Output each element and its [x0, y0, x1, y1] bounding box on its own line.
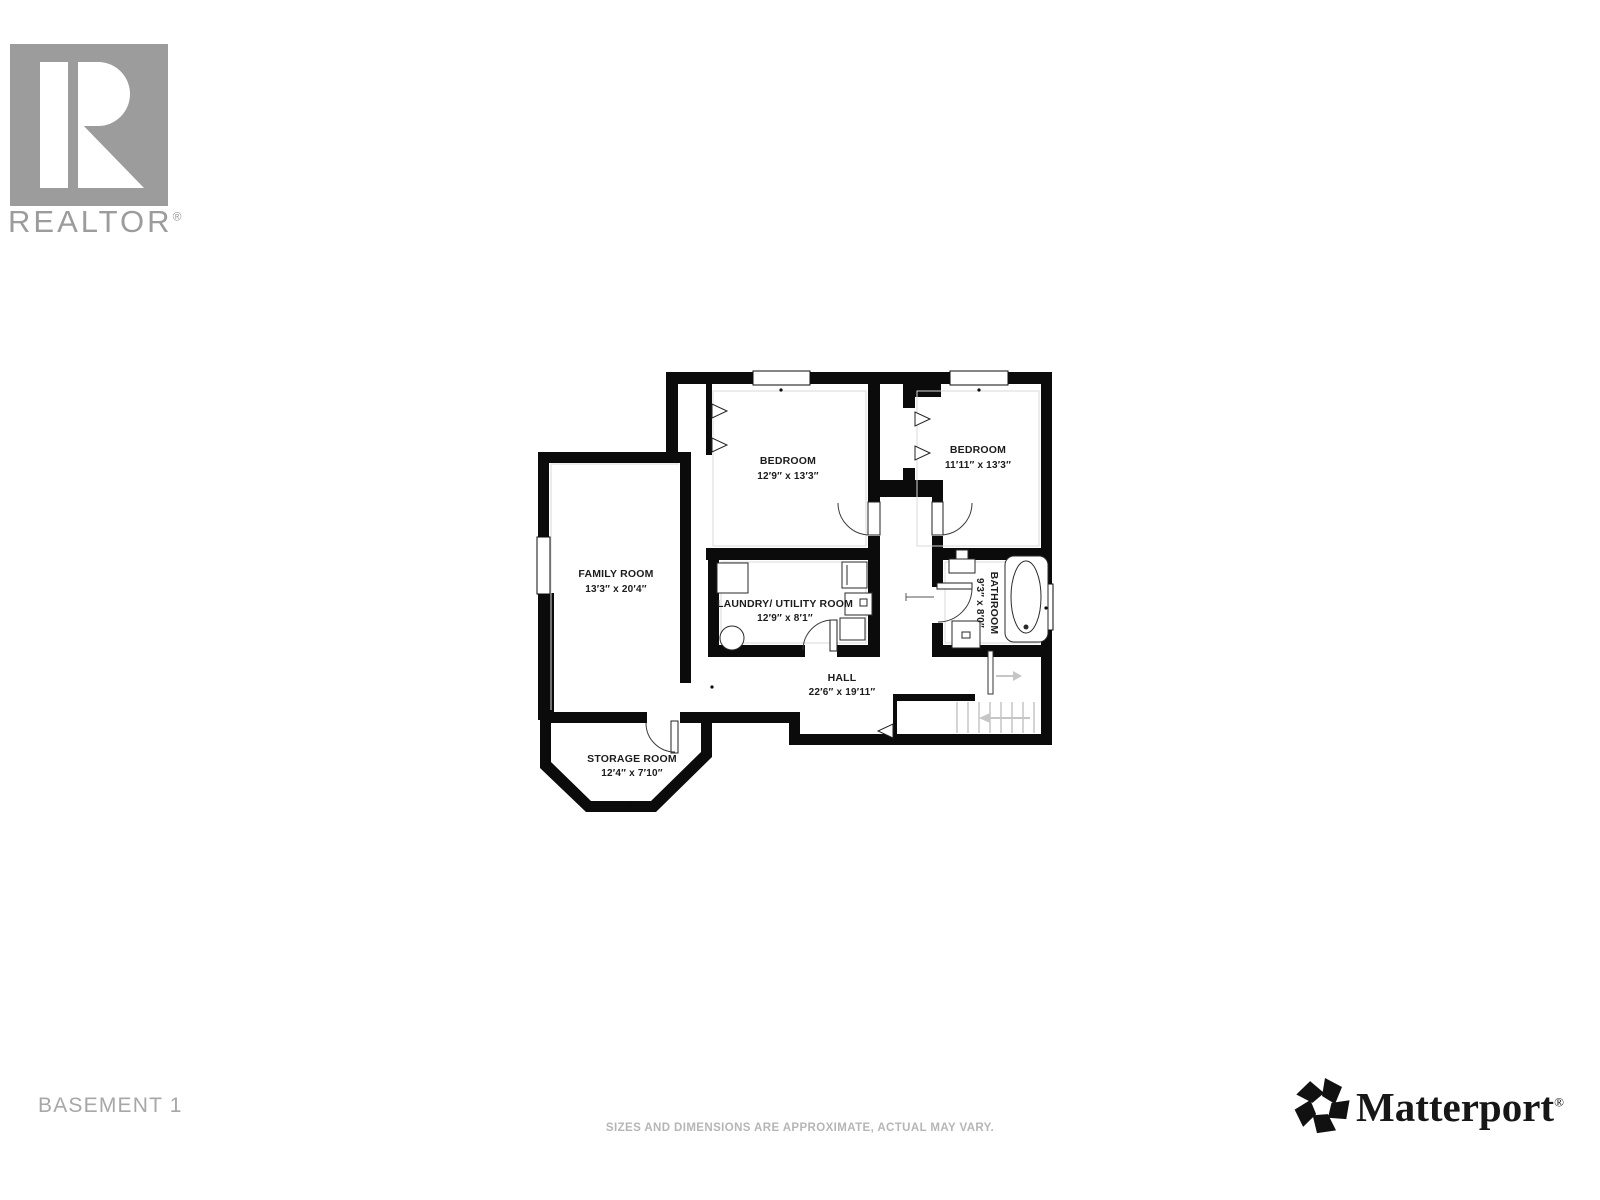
toilet — [949, 559, 975, 573]
floor-level-label: BASEMENT 1 — [38, 1094, 183, 1118]
realtor-wordmark: REALTOR® — [8, 204, 181, 240]
room-label-bathroom-group: BATHROOM 9′3″ x 8′0″ — [974, 572, 1000, 635]
room-label-storage: STORAGE ROOM — [587, 753, 677, 765]
staircase — [957, 651, 1034, 733]
room-dims-bathroom: 9′3″ x 8′0″ — [974, 578, 985, 628]
room-label-bedroom-1: BEDROOM — [760, 455, 816, 467]
stair-up-arrow-icon — [1013, 671, 1022, 681]
room-label-laundry: LAUNDRY/ UTILITY ROOM — [717, 598, 853, 610]
window-bedroom-1 — [753, 371, 810, 385]
realtor-logo — [10, 44, 168, 206]
window-family-room — [537, 537, 550, 594]
window-bedroom-2 — [950, 371, 1008, 385]
appliance — [840, 618, 865, 640]
room-dims-hall: 22′6″ x 19′11″ — [809, 687, 876, 698]
room-label-bathroom: BATHROOM — [988, 572, 1000, 635]
room-dims-storage: 12′4″ x 7′10″ — [601, 768, 662, 779]
toilet-tank — [956, 550, 968, 559]
room-dims-bedroom-1: 12′9″ x 13′3″ — [757, 471, 818, 482]
room-label-hall: HALL — [828, 672, 857, 684]
room-dims-bedroom-2: 11′11″ x 13′3″ — [945, 460, 1011, 471]
floorplan-page: REALTOR® — [0, 0, 1600, 1200]
stair-rail — [988, 651, 993, 694]
washer — [842, 562, 867, 588]
room-label-family-room: FAMILY ROOM — [578, 568, 653, 580]
stair-down-arrow-icon — [979, 713, 990, 723]
realtor-registered-icon: ® — [173, 210, 182, 224]
matterport-logo-icon — [1292, 1076, 1352, 1136]
room-dims-family-room: 13′3″ x 20′4″ — [585, 584, 646, 595]
floorplan-drawing: BEDROOM 12′9″ x 13′3″ BEDROOM 11′11″ x 1… — [520, 360, 1080, 830]
water-heater — [720, 626, 744, 650]
furnace — [717, 563, 748, 593]
room-label-bedroom-2: BEDROOM — [950, 444, 1006, 456]
room-dims-laundry: 12′9″ x 8′1″ — [757, 613, 813, 624]
matterport-wordmark: Matterport® — [1356, 1083, 1564, 1131]
matterport-registered-icon: ® — [1554, 1094, 1564, 1109]
